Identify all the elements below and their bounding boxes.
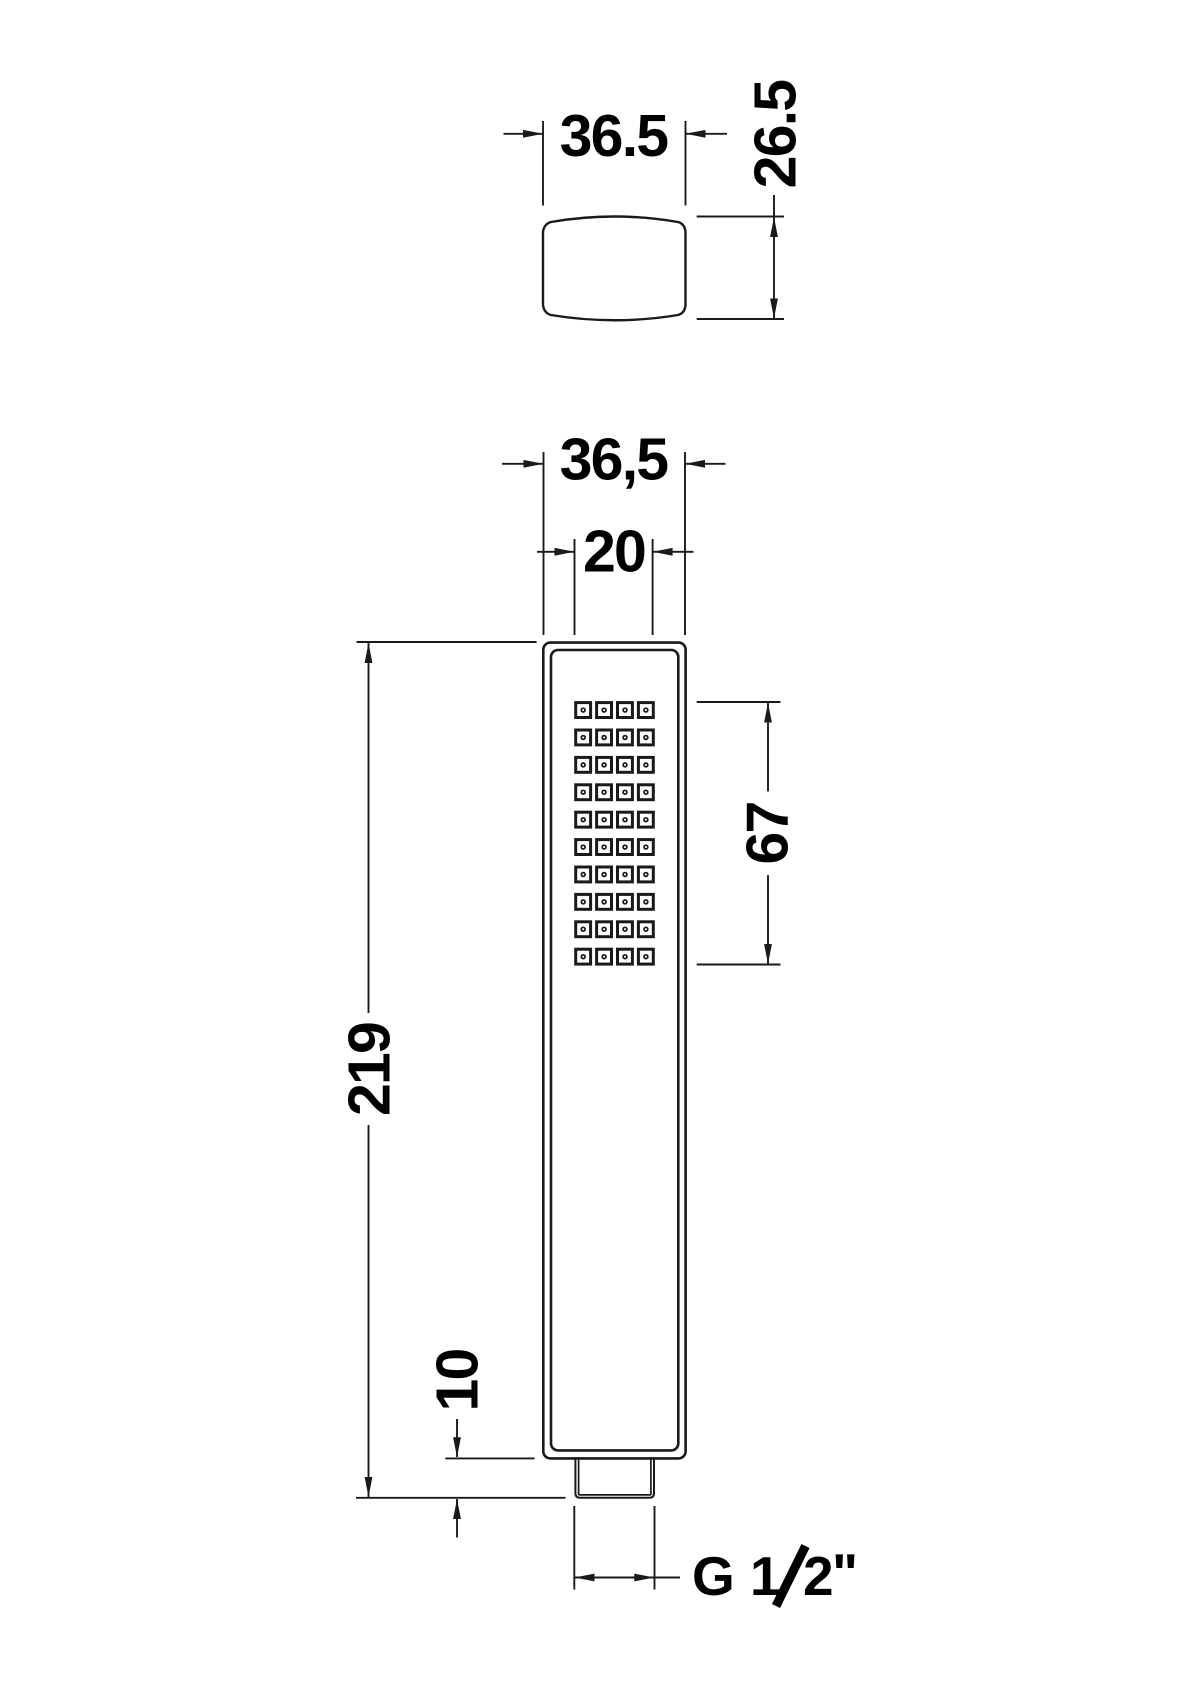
svg-text:26.5: 26.5 — [743, 80, 809, 189]
svg-text:G 1: G 1 — [692, 1545, 781, 1607]
svg-text:10: 10 — [424, 1349, 490, 1411]
svg-text:20: 20 — [583, 519, 645, 585]
svg-text:36.5: 36.5 — [560, 103, 669, 169]
svg-text:36,5: 36,5 — [560, 427, 669, 493]
svg-text:67: 67 — [735, 802, 801, 864]
svg-text:": " — [832, 1542, 858, 1604]
svg-text:219: 219 — [336, 1023, 402, 1116]
svg-text:2: 2 — [803, 1545, 834, 1607]
